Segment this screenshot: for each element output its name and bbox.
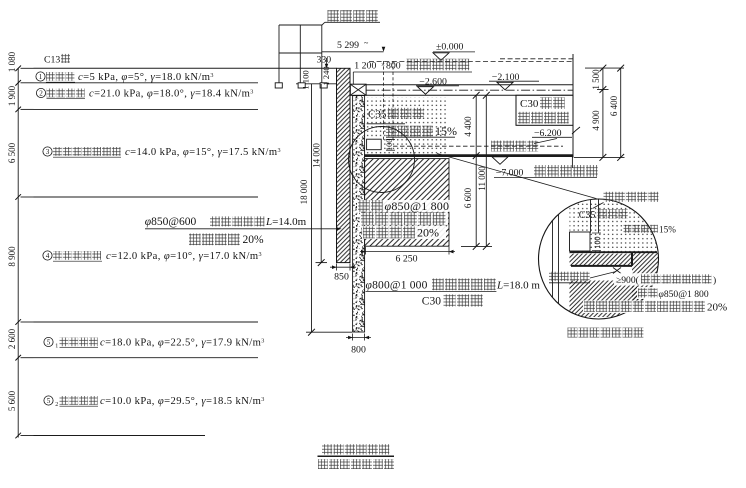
svg-text:c=5 kPa, φ=5°, γ=18.0 kN/m3: c=5 kPa, φ=5°, γ=18.0 kN/m3 bbox=[78, 72, 214, 83]
svg-text:L=18.0 m: L=18.0 m bbox=[496, 279, 540, 291]
svg-text:100: 100 bbox=[385, 139, 394, 151]
svg-text:c=21.0 kPa, φ=18.0°, γ=18.4 kN: c=21.0 kPa, φ=18.0°, γ=18.4 kN/m3 bbox=[89, 89, 254, 100]
svg-text:1: 1 bbox=[55, 344, 58, 350]
svg-text:5 299: 5 299 bbox=[337, 40, 359, 51]
svg-text:2 600: 2 600 bbox=[7, 328, 17, 349]
svg-text:330: 330 bbox=[317, 55, 332, 66]
svg-text:φ800@1 000: φ800@1 000 bbox=[366, 279, 428, 291]
svg-text:6 250: 6 250 bbox=[395, 253, 417, 264]
svg-text:18 000: 18 000 bbox=[299, 179, 309, 204]
svg-text:20%: 20% bbox=[417, 225, 439, 239]
svg-text:4 900: 4 900 bbox=[591, 110, 601, 131]
svg-text:C30: C30 bbox=[520, 98, 539, 110]
svg-text:1 080: 1 080 bbox=[7, 51, 17, 72]
svg-text:4: 4 bbox=[46, 252, 50, 260]
svg-text:C35: C35 bbox=[368, 109, 387, 121]
svg-text:5: 5 bbox=[47, 397, 51, 405]
svg-text:c=10.0 kPa, φ=29.5°, γ=18.5 kN: c=10.0 kPa, φ=29.5°, γ=18.5 kN/m3 bbox=[100, 396, 265, 407]
svg-text:5: 5 bbox=[47, 339, 51, 347]
svg-text:C35: C35 bbox=[579, 210, 596, 221]
svg-text:20%: 20% bbox=[243, 234, 265, 246]
svg-text:C13: C13 bbox=[44, 55, 60, 66]
svg-text:1 500: 1 500 bbox=[591, 69, 601, 90]
svg-text:1 900: 1 900 bbox=[7, 85, 17, 106]
svg-text:11 000: 11 000 bbox=[477, 166, 487, 191]
svg-text:1 200: 1 200 bbox=[354, 60, 376, 71]
svg-text:6 500: 6 500 bbox=[7, 142, 17, 163]
svg-text:~: ~ bbox=[364, 39, 369, 48]
svg-text:8 900: 8 900 bbox=[7, 246, 17, 267]
svg-text:c=18.0 kPa, φ=22.5°, γ=17.9 kN: c=18.0 kPa, φ=22.5°, γ=17.9 kN/m3 bbox=[100, 338, 265, 349]
svg-text:4 400: 4 400 bbox=[463, 116, 473, 137]
svg-text:850: 850 bbox=[334, 272, 349, 283]
svg-text:≥900(: ≥900( bbox=[616, 275, 639, 286]
svg-text:φ850@1 800: φ850@1 800 bbox=[659, 289, 709, 300]
svg-text:1 100: 1 100 bbox=[301, 70, 311, 89]
svg-text:L=14.0m: L=14.0m bbox=[265, 216, 307, 228]
svg-text:±0.000: ±0.000 bbox=[436, 42, 464, 53]
svg-text:2: 2 bbox=[55, 402, 58, 408]
svg-text:2: 2 bbox=[39, 90, 43, 98]
svg-text:1 240: 1 240 bbox=[321, 66, 331, 85]
svg-text:800: 800 bbox=[351, 345, 366, 356]
svg-text:20%: 20% bbox=[707, 302, 727, 314]
svg-text:3: 3 bbox=[46, 148, 50, 156]
svg-text:6 600: 6 600 bbox=[463, 187, 473, 208]
svg-text:φ850@600: φ850@600 bbox=[145, 216, 197, 228]
svg-text:6 400: 6 400 bbox=[609, 95, 619, 116]
svg-text:5 600: 5 600 bbox=[7, 390, 17, 411]
svg-text:C30: C30 bbox=[422, 295, 441, 307]
svg-text:15%: 15% bbox=[659, 224, 676, 234]
svg-text:14 000: 14 000 bbox=[311, 143, 321, 168]
svg-text:): ) bbox=[713, 275, 716, 286]
svg-text:φ850@1 800: φ850@1 800 bbox=[385, 199, 450, 213]
svg-text:×: × bbox=[381, 61, 385, 69]
svg-text:100: 100 bbox=[593, 236, 602, 248]
svg-text:15%: 15% bbox=[435, 124, 457, 138]
svg-text:c=14.0 kPa, φ=15°, γ=17.5 kN/m: c=14.0 kPa, φ=15°, γ=17.5 kN/m3 bbox=[125, 147, 281, 158]
svg-text:c=12.0 kPa, φ=10°, γ=17.0 kN/m: c=12.0 kPa, φ=10°, γ=17.0 kN/m3 bbox=[106, 251, 262, 262]
svg-text:1: 1 bbox=[39, 73, 43, 81]
